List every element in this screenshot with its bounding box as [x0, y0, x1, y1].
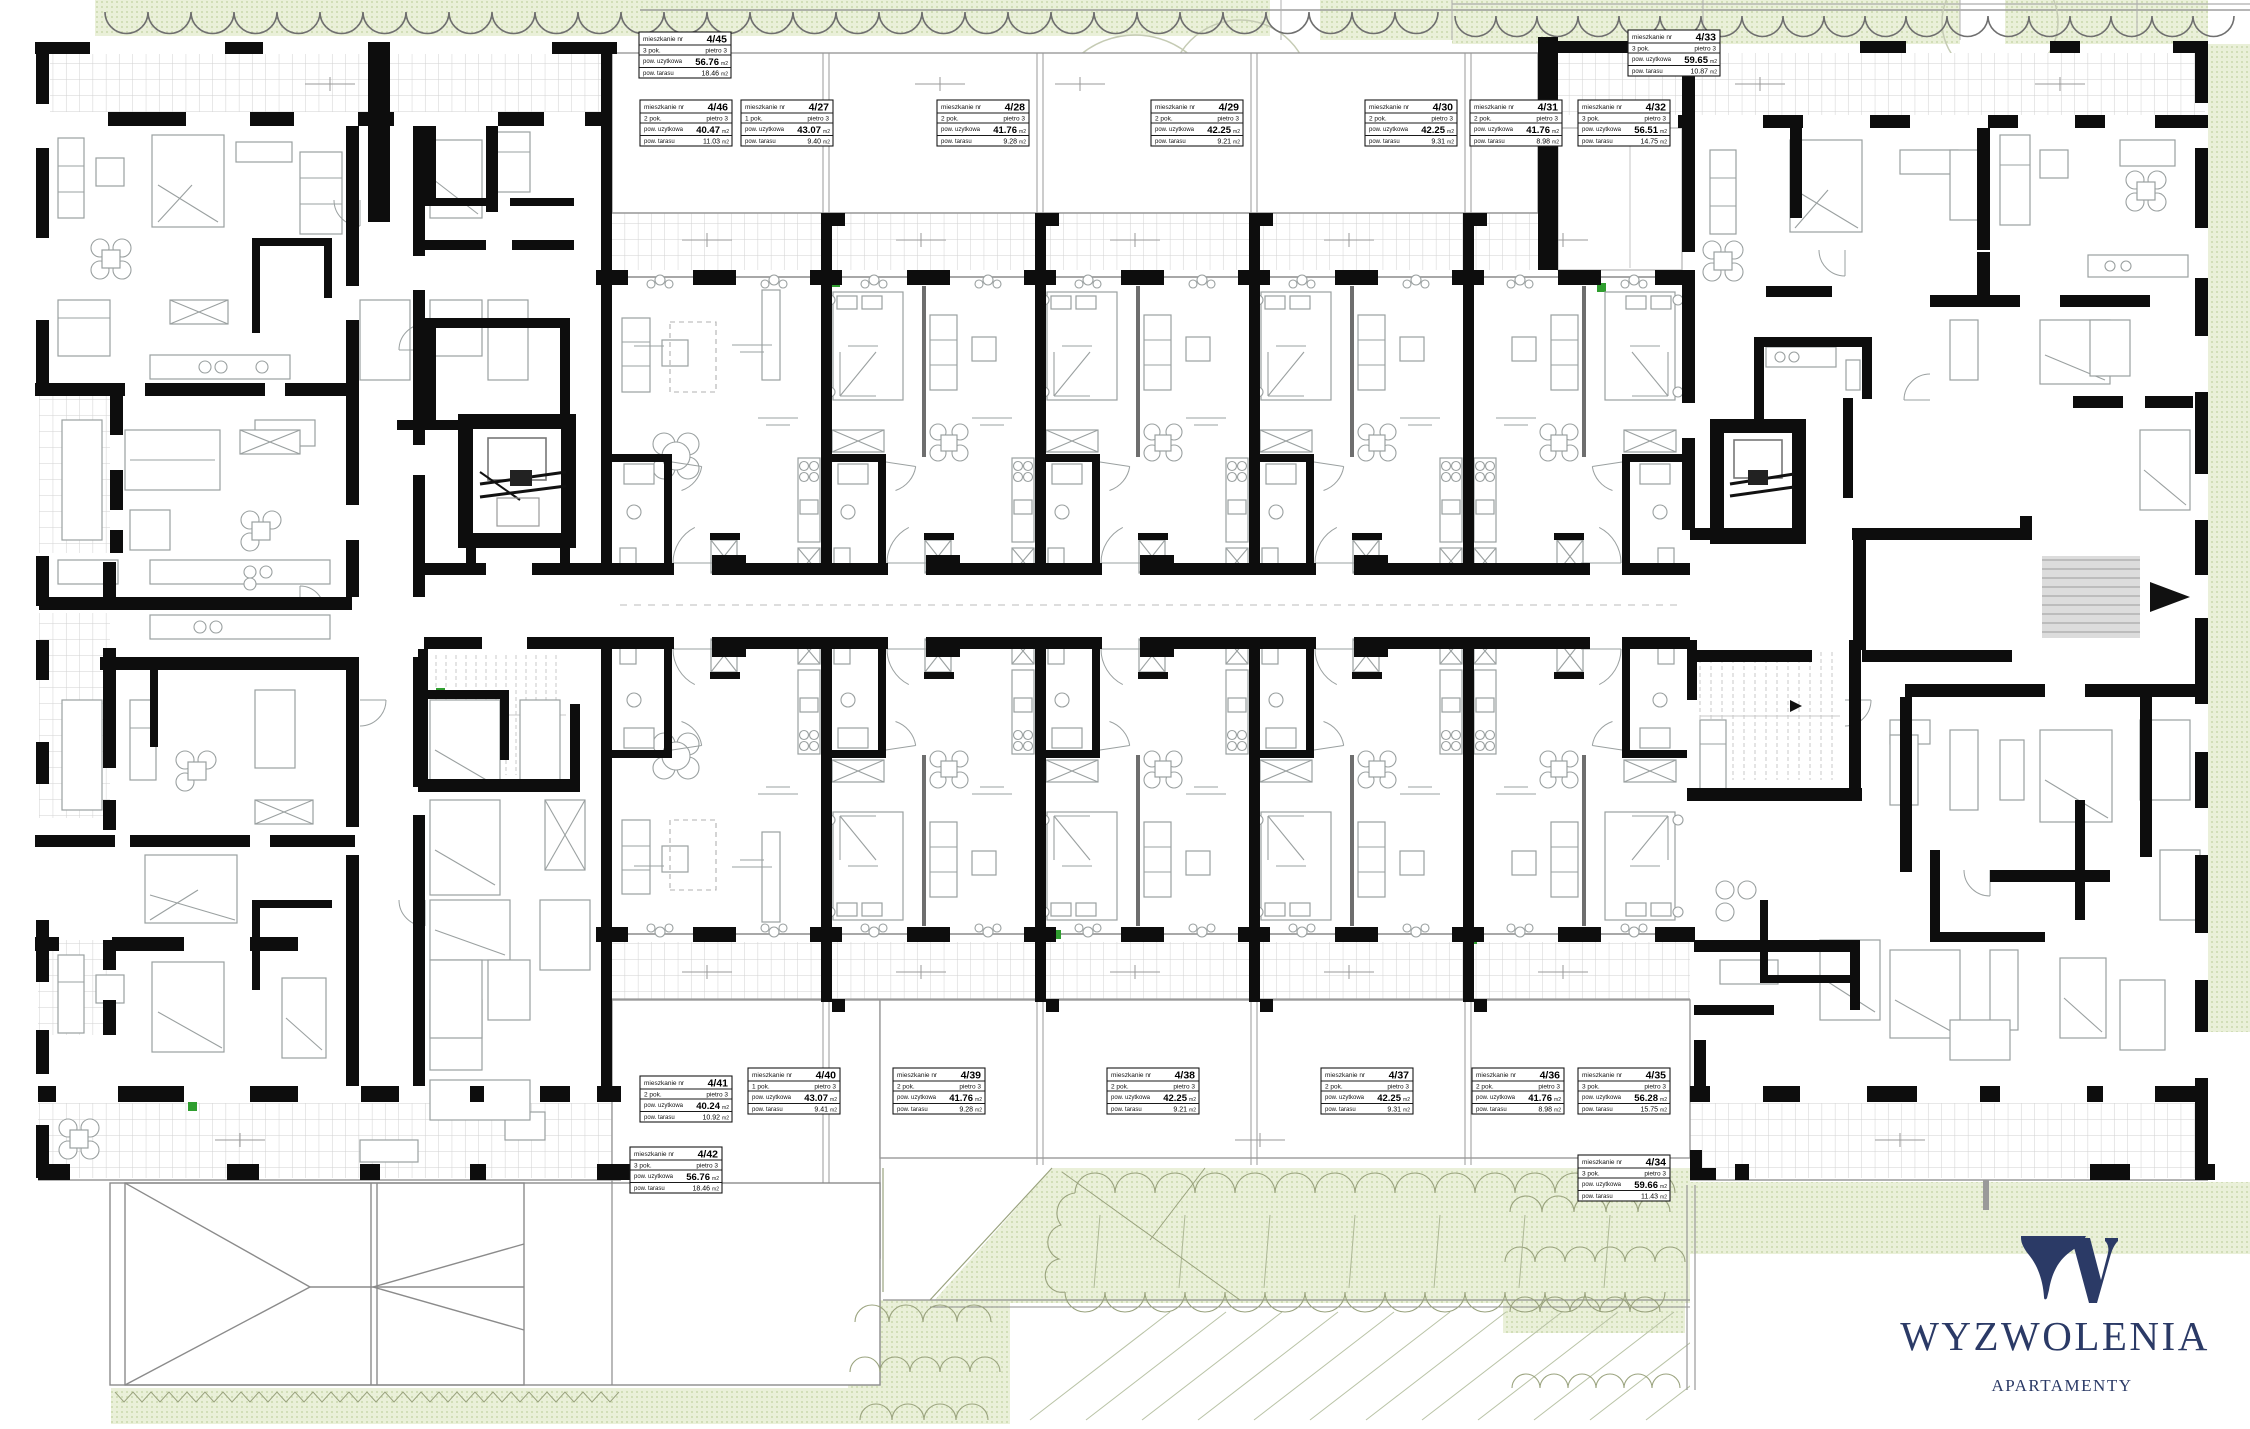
svg-text:15.75: 15.75 — [1640, 1107, 1658, 1114]
svg-text:m2: m2 — [712, 1187, 719, 1193]
svg-text:m2: m2 — [823, 129, 830, 135]
svg-text:m2: m2 — [1019, 129, 1026, 135]
svg-text:41.76: 41.76 — [993, 125, 1017, 136]
svg-text:42.25: 42.25 — [1377, 1093, 1401, 1104]
svg-text:mieszkanie nr: mieszkanie nr — [941, 104, 982, 111]
svg-text:9.40: 9.40 — [807, 139, 821, 146]
svg-text:pow. tarasu: pow. tarasu — [897, 1107, 928, 1113]
svg-text:mieszkanie nr: mieszkanie nr — [1155, 104, 1196, 111]
svg-text:4/31: 4/31 — [1538, 102, 1559, 114]
svg-text:APARTAMENTY: APARTAMENTY — [1991, 1376, 2132, 1395]
svg-text:9.21: 9.21 — [1217, 139, 1231, 146]
svg-text:mieszkanie nr: mieszkanie nr — [1474, 104, 1515, 111]
svg-text:3 pok.: 3 pok. — [1632, 46, 1650, 53]
svg-text:pow. tarasu: pow. tarasu — [1582, 1107, 1613, 1113]
svg-text:pietro 3: pietro 3 — [1694, 46, 1716, 53]
svg-text:56.76: 56.76 — [686, 1172, 710, 1183]
svg-text:8.98: 8.98 — [1538, 1107, 1552, 1114]
svg-text:mieszkanie nr: mieszkanie nr — [752, 1072, 793, 1079]
svg-text:pow. tarasu: pow. tarasu — [1474, 139, 1505, 145]
svg-text:4/28: 4/28 — [1005, 102, 1026, 114]
svg-text:4/32: 4/32 — [1646, 102, 1667, 114]
svg-text:m2: m2 — [1189, 1108, 1196, 1114]
svg-text:40.24: 40.24 — [696, 1101, 720, 1112]
svg-text:mieszkanie nr: mieszkanie nr — [897, 1072, 938, 1079]
svg-text:2 pok.: 2 pok. — [941, 116, 959, 123]
svg-text:11.03: 11.03 — [703, 139, 720, 146]
svg-text:pietro 3: pietro 3 — [1644, 1084, 1666, 1091]
svg-text:56.28: 56.28 — [1634, 1093, 1658, 1104]
svg-text:m2: m2 — [1660, 140, 1667, 146]
svg-text:m2: m2 — [1660, 1097, 1667, 1103]
svg-text:m2: m2 — [1710, 70, 1717, 76]
svg-text:18.46: 18.46 — [701, 71, 719, 78]
svg-text:pow. tarasu: pow. tarasu — [1632, 69, 1663, 75]
svg-text:m2: m2 — [830, 1097, 837, 1103]
svg-text:2 pok.: 2 pok. — [897, 1084, 915, 1091]
svg-text:pietro 3: pietro 3 — [1217, 116, 1239, 123]
svg-text:pow. tarasu: pow. tarasu — [644, 139, 675, 145]
svg-text:10.87: 10.87 — [1690, 69, 1708, 76]
svg-text:m2: m2 — [1403, 1097, 1410, 1103]
svg-text:mieszkanie nr: mieszkanie nr — [644, 104, 685, 111]
svg-text:m2: m2 — [1660, 129, 1667, 135]
svg-text:pow. tarasu: pow. tarasu — [745, 139, 776, 145]
svg-text:m2: m2 — [1019, 140, 1026, 146]
svg-text:mieszkanie nr: mieszkanie nr — [1476, 1072, 1517, 1079]
svg-text:4/30: 4/30 — [1433, 102, 1454, 114]
svg-text:4/37: 4/37 — [1389, 1070, 1410, 1082]
svg-text:mieszkanie nr: mieszkanie nr — [1369, 104, 1410, 111]
svg-text:m2: m2 — [1554, 1097, 1561, 1103]
svg-text:pow. tarasu: pow. tarasu — [1325, 1107, 1356, 1113]
svg-text:pietro 3: pietro 3 — [696, 1163, 718, 1170]
svg-text:pietro 3: pietro 3 — [1538, 1084, 1560, 1091]
svg-text:pietro 3: pietro 3 — [1387, 1084, 1409, 1091]
svg-text:4/38: 4/38 — [1175, 1070, 1196, 1082]
svg-text:pietro 3: pietro 3 — [1644, 1171, 1666, 1178]
svg-text:m2: m2 — [1552, 140, 1559, 146]
svg-text:9.21: 9.21 — [1173, 1107, 1187, 1114]
svg-text:pow. uzytkowa: pow. uzytkowa — [634, 1174, 674, 1180]
svg-text:2 pok.: 2 pok. — [644, 1092, 662, 1099]
svg-text:m2: m2 — [1189, 1097, 1196, 1103]
svg-text:1 pok.: 1 pok. — [752, 1084, 770, 1091]
svg-text:WYZWOLENIA: WYZWOLENIA — [1900, 1313, 2210, 1359]
svg-text:pietro 3: pietro 3 — [706, 1092, 728, 1099]
svg-text:59.66: 59.66 — [1634, 1180, 1658, 1191]
svg-text:pow. uzytkowa: pow. uzytkowa — [644, 127, 684, 133]
svg-text:9.28: 9.28 — [959, 1107, 973, 1114]
svg-text:9.31: 9.31 — [1387, 1107, 1401, 1114]
svg-text:mieszkanie nr: mieszkanie nr — [634, 1151, 675, 1158]
svg-text:pow. tarasu: pow. tarasu — [1155, 139, 1186, 145]
svg-text:18.46: 18.46 — [692, 1186, 710, 1193]
svg-text:4/41: 4/41 — [708, 1078, 729, 1090]
svg-text:pow. tarasu: pow. tarasu — [634, 1186, 665, 1192]
svg-text:pow. uzytkowa: pow. uzytkowa — [643, 59, 683, 65]
svg-text:pow. uzytkowa: pow. uzytkowa — [1369, 127, 1409, 133]
svg-text:42.25: 42.25 — [1163, 1093, 1187, 1104]
svg-text:42.25: 42.25 — [1421, 125, 1445, 136]
svg-text:pietro 3: pietro 3 — [807, 116, 829, 123]
svg-text:56.76: 56.76 — [695, 57, 719, 68]
svg-text:pow. uzytkowa: pow. uzytkowa — [644, 1103, 684, 1109]
svg-text:43.07: 43.07 — [797, 125, 821, 136]
svg-text:m2: m2 — [722, 140, 729, 146]
svg-text:pow. uzytkowa: pow. uzytkowa — [1582, 1182, 1622, 1188]
svg-text:pietro 3: pietro 3 — [1173, 1084, 1195, 1091]
svg-text:56.51: 56.51 — [1634, 125, 1658, 136]
svg-text:pow. tarasu: pow. tarasu — [643, 71, 674, 77]
svg-text:3 pok.: 3 pok. — [1582, 1171, 1600, 1178]
svg-text:pow. uzytkowa: pow. uzytkowa — [745, 127, 785, 133]
svg-text:pow. uzytkowa: pow. uzytkowa — [1155, 127, 1195, 133]
svg-text:2 pok.: 2 pok. — [1476, 1084, 1494, 1091]
svg-text:pietro 3: pietro 3 — [959, 1084, 981, 1091]
svg-text:mieszkanie nr: mieszkanie nr — [745, 104, 786, 111]
svg-text:pietro 3: pietro 3 — [1431, 116, 1453, 123]
svg-text:m2: m2 — [830, 1108, 837, 1114]
svg-text:m2: m2 — [1660, 1108, 1667, 1114]
svg-text:m2: m2 — [721, 61, 728, 67]
svg-text:41.76: 41.76 — [1528, 1093, 1552, 1104]
svg-text:pietro 3: pietro 3 — [1003, 116, 1025, 123]
svg-text:4/35: 4/35 — [1646, 1070, 1667, 1082]
svg-text:m2: m2 — [721, 72, 728, 78]
svg-text:pow. uzytkowa: pow. uzytkowa — [752, 1095, 792, 1101]
svg-text:2 pok.: 2 pok. — [1155, 116, 1173, 123]
svg-text:8.98: 8.98 — [1536, 139, 1550, 146]
svg-text:m2: m2 — [1233, 129, 1240, 135]
svg-text:mieszkanie nr: mieszkanie nr — [1632, 34, 1673, 41]
svg-text:3 pok.: 3 pok. — [1582, 1084, 1600, 1091]
svg-text:14.75: 14.75 — [1640, 139, 1658, 146]
svg-text:4/45: 4/45 — [707, 34, 728, 46]
svg-text:m2: m2 — [1447, 140, 1454, 146]
svg-text:59.65: 59.65 — [1684, 55, 1708, 66]
svg-text:41.76: 41.76 — [1526, 125, 1550, 136]
svg-text:10.92: 10.92 — [702, 1115, 720, 1122]
svg-text:9.28: 9.28 — [1003, 139, 1017, 146]
svg-text:pow. uzytkowa: pow. uzytkowa — [1632, 57, 1672, 63]
svg-text:pow. tarasu: pow. tarasu — [1476, 1107, 1507, 1113]
svg-text:m2: m2 — [1710, 59, 1717, 65]
svg-text:pow. tarasu: pow. tarasu — [941, 139, 972, 145]
svg-text:4/46: 4/46 — [708, 102, 729, 114]
svg-text:3 pok.: 3 pok. — [1582, 116, 1600, 123]
svg-text:40.47: 40.47 — [696, 125, 720, 136]
svg-text:4/34: 4/34 — [1646, 1157, 1667, 1169]
svg-text:pow. uzytkowa: pow. uzytkowa — [1325, 1095, 1365, 1101]
svg-text:pow. uzytkowa: pow. uzytkowa — [1474, 127, 1514, 133]
svg-text:4/36: 4/36 — [1540, 1070, 1561, 1082]
svg-text:11.43: 11.43 — [1641, 1194, 1658, 1201]
svg-text:m2: m2 — [1403, 1108, 1410, 1114]
svg-text:4/40: 4/40 — [816, 1070, 837, 1082]
svg-text:m2: m2 — [1233, 140, 1240, 146]
svg-text:1 pok.: 1 pok. — [745, 116, 763, 123]
svg-text:pietro 3: pietro 3 — [1644, 116, 1666, 123]
svg-text:2 pok.: 2 pok. — [1325, 1084, 1343, 1091]
svg-text:pow. tarasu: pow. tarasu — [1582, 139, 1613, 145]
svg-text:m2: m2 — [975, 1097, 982, 1103]
svg-text:43.07: 43.07 — [804, 1093, 828, 1104]
svg-text:4/27: 4/27 — [809, 102, 830, 114]
svg-text:pow. tarasu: pow. tarasu — [752, 1107, 783, 1113]
svg-text:m2: m2 — [722, 1116, 729, 1122]
svg-text:4/39: 4/39 — [961, 1070, 982, 1082]
svg-text:2 pok.: 2 pok. — [1111, 1084, 1129, 1091]
svg-text:9.31: 9.31 — [1431, 139, 1445, 146]
svg-text:mieszkanie nr: mieszkanie nr — [1582, 104, 1623, 111]
svg-text:m2: m2 — [1447, 129, 1454, 135]
svg-text:m2: m2 — [1552, 129, 1559, 135]
svg-text:2 pok.: 2 pok. — [1369, 116, 1387, 123]
svg-text:mieszkanie nr: mieszkanie nr — [1325, 1072, 1366, 1079]
svg-text:3 pok.: 3 pok. — [643, 48, 661, 55]
svg-text:pow. uzytkowa: pow. uzytkowa — [1582, 1095, 1622, 1101]
svg-text:pietro 3: pietro 3 — [1536, 116, 1558, 123]
svg-text:m2: m2 — [1554, 1108, 1561, 1114]
svg-text:mieszkanie nr: mieszkanie nr — [1582, 1072, 1623, 1079]
svg-text:4/29: 4/29 — [1219, 102, 1240, 114]
svg-text:m2: m2 — [975, 1108, 982, 1114]
svg-text:mieszkanie nr: mieszkanie nr — [1582, 1159, 1623, 1166]
svg-text:2 pok.: 2 pok. — [644, 116, 662, 123]
svg-text:3 pok.: 3 pok. — [634, 1163, 652, 1170]
svg-text:m2: m2 — [1660, 1195, 1667, 1201]
svg-text:m2: m2 — [1660, 1184, 1667, 1190]
svg-text:4/42: 4/42 — [698, 1149, 719, 1161]
svg-text:pow. uzytkowa: pow. uzytkowa — [1582, 127, 1622, 133]
svg-text:pow. uzytkowa: pow. uzytkowa — [941, 127, 981, 133]
svg-text:pow. tarasu: pow. tarasu — [1111, 1107, 1142, 1113]
svg-text:mieszkanie nr: mieszkanie nr — [643, 36, 684, 43]
svg-text:m2: m2 — [722, 129, 729, 135]
svg-text:4/33: 4/33 — [1696, 32, 1717, 44]
svg-text:mieszkanie nr: mieszkanie nr — [1111, 1072, 1152, 1079]
svg-text:pow. tarasu: pow. tarasu — [644, 1115, 675, 1121]
svg-text:pow. uzytkowa: pow. uzytkowa — [1111, 1095, 1151, 1101]
svg-text:pow. uzytkowa: pow. uzytkowa — [1476, 1095, 1516, 1101]
svg-text:pietro 3: pietro 3 — [705, 48, 727, 55]
svg-text:pow. tarasu: pow. tarasu — [1582, 1194, 1613, 1200]
svg-text:m2: m2 — [823, 140, 830, 146]
svg-text:m2: m2 — [712, 1176, 719, 1182]
svg-text:pietro 3: pietro 3 — [706, 116, 728, 123]
svg-text:9.41: 9.41 — [814, 1107, 828, 1114]
svg-text:pietro 3: pietro 3 — [814, 1084, 836, 1091]
svg-text:41.76: 41.76 — [949, 1093, 973, 1104]
svg-text:m2: m2 — [722, 1105, 729, 1111]
svg-text:pow. uzytkowa: pow. uzytkowa — [897, 1095, 937, 1101]
svg-text:2 pok.: 2 pok. — [1474, 116, 1492, 123]
svg-text:mieszkanie nr: mieszkanie nr — [644, 1080, 685, 1087]
svg-text:pow. tarasu: pow. tarasu — [1369, 139, 1400, 145]
svg-text:42.25: 42.25 — [1207, 125, 1231, 136]
